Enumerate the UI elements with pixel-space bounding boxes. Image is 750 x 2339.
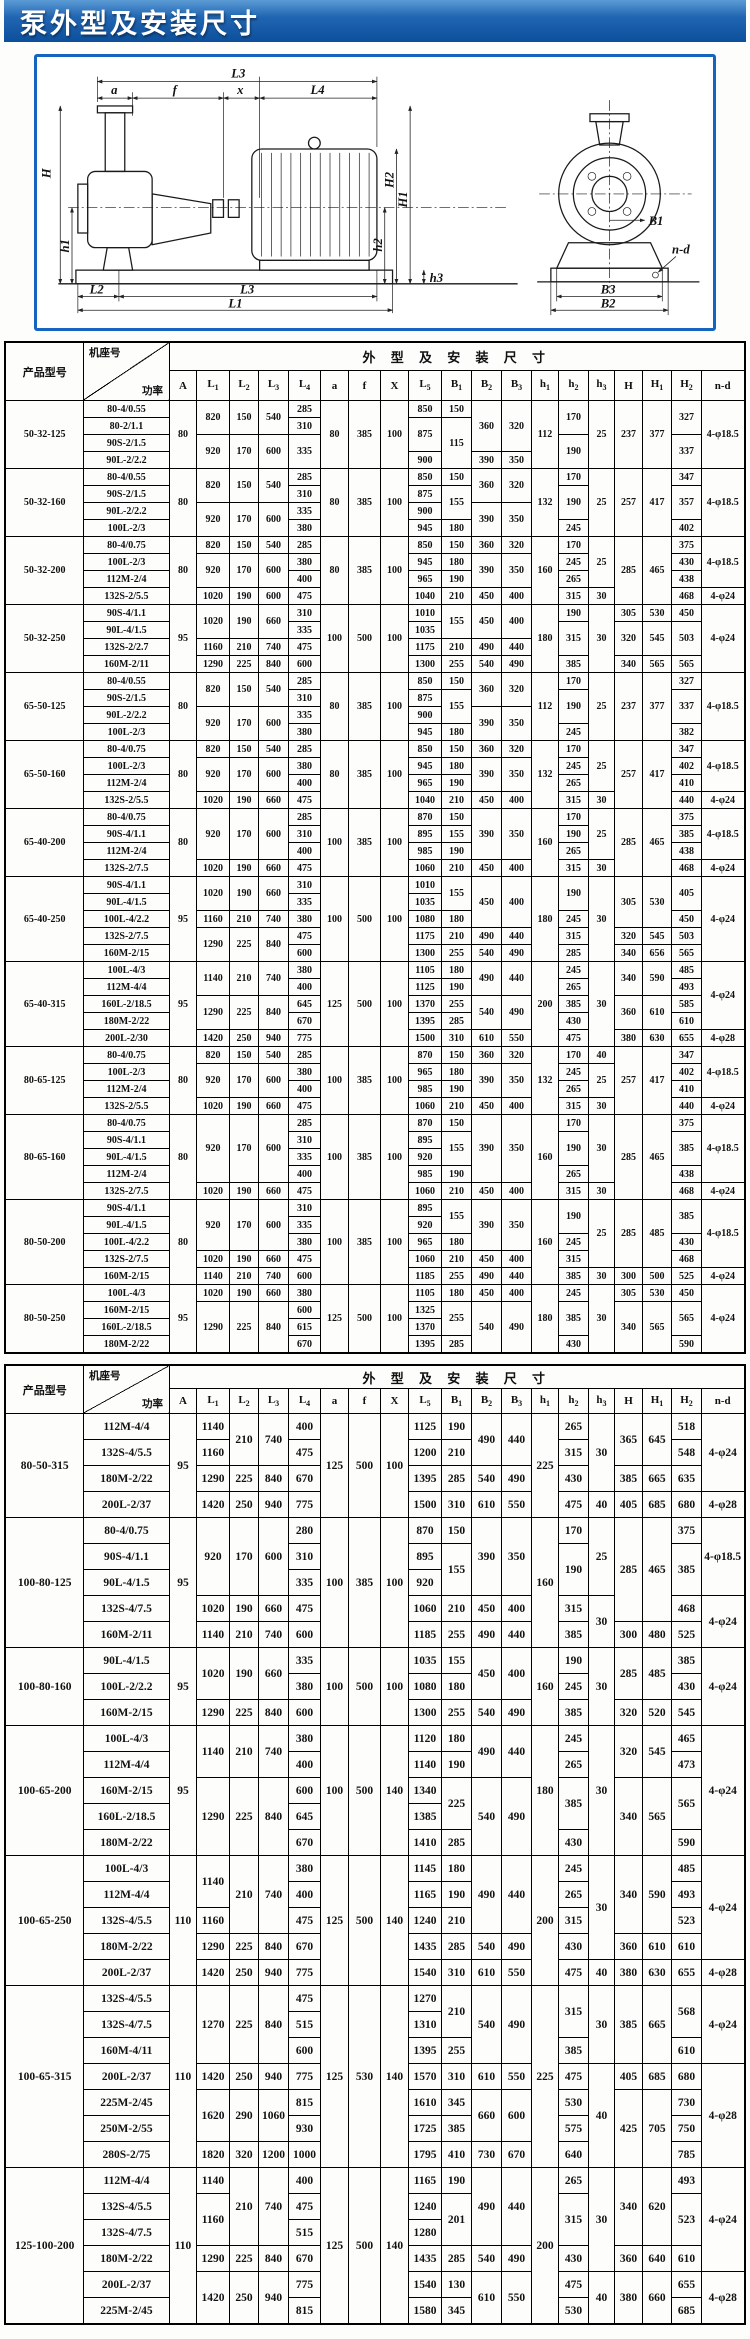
dimension-cell: 300 bbox=[614, 1622, 642, 1648]
baseplate bbox=[76, 270, 393, 284]
dimension-cell: 450 bbox=[471, 588, 501, 605]
dimension-cell: 685 bbox=[642, 2064, 671, 2090]
dimension-cell: 335 bbox=[288, 1648, 320, 1674]
header-outline-install-dims: 外 型 及 安 装 尺 寸 bbox=[169, 1365, 744, 1389]
dimension-cell: 475 bbox=[558, 1492, 588, 1518]
dimension-cell: 1820 bbox=[196, 2142, 229, 2168]
dimension-cell: 385 bbox=[348, 1518, 380, 1648]
dimension-cell: 125 bbox=[320, 1414, 348, 1518]
frame-power-cell: 200L-2/37 bbox=[83, 1492, 169, 1518]
dimension-cell: 500 bbox=[348, 2168, 380, 2325]
frame-power-cell: 132S-4/7.5 bbox=[83, 2012, 169, 2038]
dimension-cell: 550 bbox=[501, 1960, 531, 1986]
col-header-L4: L4 bbox=[288, 1389, 320, 1414]
dimension-cell: 875 bbox=[408, 418, 441, 452]
dimension-cell: 170 bbox=[229, 503, 258, 537]
dimension-cell: 225 bbox=[441, 1778, 471, 1830]
dimension-cell: 1105 bbox=[408, 962, 441, 979]
dimension-table-1: 产品型号机座号功率外 型 及 安 装 尺 寸AL1L2L3L4afXL5B1B2… bbox=[4, 341, 745, 1354]
dimension-cell: 1080 bbox=[408, 1674, 441, 1700]
dimension-cell: 310 bbox=[288, 877, 320, 894]
col-header-L5: L5 bbox=[408, 1389, 441, 1414]
frame-power-cell: 160L-2/18.5 bbox=[83, 1319, 169, 1336]
frame-power-cell: 90L-4/1.5 bbox=[83, 1648, 169, 1674]
dimension-cell: 440 bbox=[501, 1268, 531, 1285]
dimension-cell: 400 bbox=[288, 571, 320, 588]
dimension-cell: 430 bbox=[558, 1830, 588, 1856]
col-header-L1: L1 bbox=[196, 1389, 229, 1414]
dimension-cell: 265 bbox=[558, 1166, 588, 1183]
dimension-cell: 1620 bbox=[196, 2090, 229, 2142]
dimension-cell: 840 bbox=[258, 996, 288, 1030]
dimension-cell: 4-φ18.5 bbox=[701, 1115, 744, 1183]
dimension-cell: 540 bbox=[471, 1302, 501, 1354]
dimension-cell: 655 bbox=[671, 2272, 701, 2298]
frame-power-cell: 132S-2/5.5 bbox=[83, 792, 169, 809]
dimension-cell: 225 bbox=[229, 1302, 258, 1354]
dimension-cell: 170 bbox=[229, 1064, 258, 1098]
dimension-cell: 180 bbox=[441, 724, 471, 741]
frame-power-cell: 160M-2/15 bbox=[83, 1268, 169, 1285]
dimension-cell: 630 bbox=[642, 1960, 671, 1986]
dimension-cell: 100 bbox=[380, 401, 408, 469]
dimension-cell: 200 bbox=[531, 1856, 558, 1986]
dimension-cell: 590 bbox=[671, 1336, 701, 1354]
dimension-cell: 385 bbox=[348, 1115, 380, 1200]
dimension-cell: 1325 bbox=[408, 1302, 441, 1319]
dimension-cell: 257 bbox=[614, 741, 642, 809]
dimension-cell: 1140 bbox=[196, 1268, 229, 1285]
page-title-banner: 泵外型及安装尺寸 bbox=[4, 0, 746, 42]
dimension-cell: 30 bbox=[588, 1115, 614, 1183]
dimension-cell: 245 bbox=[558, 911, 588, 928]
dimension-cell: 315 bbox=[558, 1908, 588, 1934]
page: 泵外型及安装尺寸 bbox=[0, 0, 750, 2339]
dimension-cell: 350 bbox=[501, 1115, 531, 1183]
dimension-cell: 515 bbox=[288, 2220, 320, 2246]
dimension-cell: 660 bbox=[258, 1648, 288, 1700]
dimension-table-2: 产品型号机座号功率外 型 及 安 装 尺 寸AL1L2L3L4afXL5B1B2… bbox=[4, 1364, 745, 2325]
dimension-cell: 310 bbox=[288, 690, 320, 707]
power-label: 功率 bbox=[142, 1396, 163, 1411]
dimension-cell: 680 bbox=[671, 2064, 701, 2090]
dimension-cell: 180 bbox=[441, 1674, 471, 1700]
dimension-cell: 4-φ24 bbox=[701, 2168, 744, 2272]
dimension-cell: 585 bbox=[671, 996, 701, 1013]
dimension-cell: 95 bbox=[169, 1518, 196, 1648]
dimension-cell: 160 bbox=[531, 1518, 558, 1648]
dimension-cell: 380 bbox=[288, 1234, 320, 1251]
dimension-cell: 870 bbox=[408, 1115, 441, 1132]
table-row: 100-80-16090L-4/1.5951020190660335100500… bbox=[5, 1648, 744, 1674]
dimension-cell: 110 bbox=[169, 1986, 196, 2168]
frame-power-cell: 90L-4/1.5 bbox=[83, 1149, 169, 1166]
col-header-X: X bbox=[380, 1389, 408, 1414]
dimension-cell: 475 bbox=[288, 1440, 320, 1466]
dimension-cell: 1140 bbox=[196, 2168, 229, 2194]
dimension-cell: 245 bbox=[558, 554, 588, 571]
dimension-cell: 25 bbox=[588, 1200, 614, 1268]
frame-power-cell: 160L-2/18.5 bbox=[83, 996, 169, 1013]
dimension-cell: 210 bbox=[441, 588, 471, 605]
dimension-cell: 200 bbox=[531, 2168, 558, 2325]
dimension-cell: 1395 bbox=[408, 2038, 441, 2064]
dimension-cell: 1435 bbox=[408, 2246, 441, 2272]
dimension-cell: 450 bbox=[471, 877, 501, 928]
dimension-cell: 685 bbox=[642, 1492, 671, 1518]
dimension-cell: 4-φ24 bbox=[701, 588, 744, 605]
dimension-cell: 112 bbox=[531, 401, 558, 469]
dimension-cell: 320 bbox=[614, 1700, 642, 1726]
dimension-cell: 840 bbox=[258, 928, 288, 962]
dimension-cell: 360 bbox=[471, 741, 501, 758]
dimension-cell: 610 bbox=[471, 1492, 501, 1518]
dimension-cell: 180 bbox=[441, 1856, 471, 1882]
dimension-cell: 160 bbox=[531, 809, 558, 877]
dimension-cell: 940 bbox=[258, 2064, 288, 2090]
frame-power-cell: 100L-2/3 bbox=[83, 520, 169, 537]
dim-label-h3: h3 bbox=[430, 271, 443, 285]
dimension-cell: 380 bbox=[288, 911, 320, 928]
dimension-cell: 660 bbox=[258, 1098, 288, 1115]
dimension-cell: 1290 bbox=[196, 928, 229, 962]
frame-power-cell: 132S-2/2.7 bbox=[83, 639, 169, 656]
dimension-cell: 740 bbox=[258, 1414, 288, 1466]
dimension-cell: 365 bbox=[614, 1414, 642, 1466]
dimension-cell: 660 bbox=[471, 2090, 501, 2142]
dimension-cell: 335 bbox=[288, 1217, 320, 1234]
dimension-cell: 1300 bbox=[408, 1700, 441, 1726]
dimension-cell: 237 bbox=[614, 401, 642, 469]
dimension-cell: 380 bbox=[614, 1030, 642, 1047]
dimension-cell: 1160 bbox=[196, 2194, 229, 2246]
dimension-cell: 350 bbox=[501, 1518, 531, 1596]
dimension-cell: 310 bbox=[288, 605, 320, 622]
dimension-cell: 430 bbox=[558, 2246, 588, 2272]
dimension-cell: 400 bbox=[288, 843, 320, 860]
dimension-cell: 525 bbox=[671, 1268, 701, 1285]
dimension-cell: 940 bbox=[258, 1492, 288, 1518]
dimension-cell: 225 bbox=[531, 1414, 558, 1518]
dimension-cell: 1395 bbox=[408, 1466, 441, 1492]
dimension-cell: 315 bbox=[558, 1098, 588, 1115]
col-header-frame-power-diagonal: 机座号功率 bbox=[83, 342, 169, 401]
dimension-cell: 1020 bbox=[196, 1596, 229, 1622]
dimension-cell: 945 bbox=[408, 724, 441, 741]
dimension-cell: 1270 bbox=[408, 1986, 441, 2012]
dimension-cell: 1240 bbox=[408, 1908, 441, 1934]
dimension-cell: 155 bbox=[441, 1544, 471, 1596]
dimension-cell: 385 bbox=[671, 1200, 701, 1234]
col-header-B3: B3 bbox=[501, 371, 531, 401]
dimension-cell: 4-φ24 bbox=[701, 860, 744, 877]
dimension-cell: 305 bbox=[614, 877, 642, 928]
dimension-cell: 1140 bbox=[196, 1622, 229, 1648]
dimension-cell: 490 bbox=[501, 656, 531, 673]
dimension-cell: 740 bbox=[258, 1726, 288, 1778]
dimension-cell: 210 bbox=[441, 860, 471, 877]
col-header-H: H bbox=[614, 371, 642, 401]
dimension-cell: 350 bbox=[501, 554, 531, 588]
dimension-cell: 670 bbox=[288, 2246, 320, 2272]
dimension-cell: 417 bbox=[642, 1047, 671, 1115]
dimension-cell: 920 bbox=[196, 503, 229, 537]
product-model-cell: 80-50-315 bbox=[5, 1414, 83, 1518]
frame-power-cell: 100L-4/3 bbox=[83, 962, 169, 979]
frame-power-cell: 112M-2/4 bbox=[83, 775, 169, 792]
dimension-cell: 30 bbox=[588, 1596, 614, 1648]
frame-power-cell: 80-4/0.75 bbox=[83, 809, 169, 826]
dimension-cell: 1010 bbox=[408, 877, 441, 894]
dimension-cell: 385 bbox=[614, 1466, 642, 1492]
frame-power-cell: 90S-2/1.5 bbox=[83, 690, 169, 707]
dimension-cell: 1020 bbox=[196, 588, 229, 605]
dimension-lines-end: B1 B3 B2 n-d bbox=[551, 214, 690, 315]
dimension-cell: 640 bbox=[558, 2142, 588, 2168]
dimension-cell: 1410 bbox=[408, 1830, 441, 1856]
dimension-cell: 750 bbox=[671, 2116, 701, 2142]
product-model-cell: 100-65-250 bbox=[5, 1856, 83, 1986]
dimension-cell: 1145 bbox=[408, 1856, 441, 1882]
dimension-cell: 350 bbox=[501, 707, 531, 741]
dimension-cell: 357 bbox=[671, 486, 701, 520]
col-header-L3: L3 bbox=[258, 371, 288, 401]
dimension-cell: 985 bbox=[408, 1081, 441, 1098]
dimension-cell: 410 bbox=[441, 2142, 471, 2168]
frame-power-cell: 132S-4/5.5 bbox=[83, 1908, 169, 1934]
dimension-cell: 600 bbox=[258, 1115, 288, 1183]
dimension-cell: 523 bbox=[671, 1908, 701, 1934]
dimension-cell: 4-φ28 bbox=[701, 2272, 744, 2325]
dimension-cell: 1060 bbox=[258, 2090, 288, 2142]
dimension-cell: 400 bbox=[501, 860, 531, 877]
frame-power-cell: 90S-4/1.1 bbox=[83, 1200, 169, 1217]
dimension-cell: 190 bbox=[441, 2168, 471, 2194]
product-model-cell: 65-50-125 bbox=[5, 673, 83, 741]
product-model-cell: 100-65-200 bbox=[5, 1726, 83, 1856]
dimension-cell: 155 bbox=[441, 826, 471, 843]
col-header-L2: L2 bbox=[229, 1389, 258, 1414]
dimension-cell: 1000 bbox=[288, 2142, 320, 2168]
dimension-cell: 360 bbox=[471, 673, 501, 707]
product-model-cell: 80-50-250 bbox=[5, 1285, 83, 1354]
dimension-cell: 500 bbox=[348, 962, 380, 1047]
dimension-cell: 80 bbox=[169, 401, 196, 469]
dimension-cell: 80 bbox=[169, 809, 196, 877]
dimension-cell: 155 bbox=[441, 1132, 471, 1166]
dimension-cell: 945 bbox=[408, 520, 441, 537]
dimension-cell: 170 bbox=[558, 401, 588, 435]
product-model-cell: 80-50-200 bbox=[5, 1200, 83, 1285]
dimension-cell: 1140 bbox=[196, 1414, 229, 1440]
dimension-cell: 100 bbox=[320, 1115, 348, 1200]
dimension-cell: 190 bbox=[558, 877, 588, 911]
dimension-cell: 320 bbox=[501, 673, 531, 707]
frame-power-cell: 112M-4/4 bbox=[83, 2168, 169, 2194]
dimension-cell: 390 bbox=[471, 707, 501, 741]
frame-power-cell: 280S-2/75 bbox=[83, 2142, 169, 2168]
dimension-cell: 500 bbox=[642, 1268, 671, 1285]
dimension-cell: 285 bbox=[441, 1336, 471, 1354]
dimension-cell: 840 bbox=[258, 656, 288, 673]
dimension-cell: 402 bbox=[671, 1064, 701, 1081]
col-header-a: a bbox=[320, 371, 348, 401]
header-outline-install-dims: 外 型 及 安 装 尺 寸 bbox=[169, 342, 744, 371]
dimension-cell: 385 bbox=[348, 401, 380, 469]
dimension-cell: 315 bbox=[558, 2194, 588, 2246]
dimension-cell: 540 bbox=[258, 741, 288, 758]
dimension-cell: 475 bbox=[288, 2194, 320, 2220]
dimension-cell: 656 bbox=[642, 945, 671, 962]
dimension-cell: 170 bbox=[558, 1047, 588, 1064]
dimension-cell: 405 bbox=[614, 2064, 642, 2090]
dimension-cell: 450 bbox=[471, 1596, 501, 1622]
dimension-cell: 210 bbox=[229, 1268, 258, 1285]
dimension-cell: 468 bbox=[671, 1596, 701, 1622]
dimension-cell: 670 bbox=[501, 2142, 531, 2168]
frame-label: 机座号 bbox=[89, 1368, 121, 1383]
dimension-cell: 100 bbox=[380, 1648, 408, 1726]
dimension-cell: 920 bbox=[408, 1570, 441, 1596]
dimension-cell: 180 bbox=[441, 758, 471, 775]
dimension-cell: 1395 bbox=[408, 1013, 441, 1030]
dimension-cell: 600 bbox=[258, 588, 288, 605]
dimension-cell: 490 bbox=[501, 1934, 531, 1960]
col-header-f: f bbox=[348, 371, 380, 401]
dimension-cell: 180 bbox=[531, 1285, 558, 1354]
dimension-cell: 132 bbox=[531, 741, 558, 809]
dimension-cell: 4-φ24 bbox=[701, 1285, 744, 1354]
dimension-cell: 965 bbox=[408, 1234, 441, 1251]
dimension-cell: 190 bbox=[558, 435, 588, 469]
dimension-cell: 450 bbox=[471, 605, 501, 639]
dimension-cell: 190 bbox=[229, 1251, 258, 1268]
dimension-cell: 940 bbox=[258, 2272, 288, 2325]
dimension-cell: 1270 bbox=[196, 1986, 229, 2064]
dimension-cell: 180 bbox=[441, 1064, 471, 1081]
dimension-cell: 450 bbox=[471, 792, 501, 809]
dimension-cell: 210 bbox=[441, 639, 471, 656]
pump-outline-drawing: L3 a f x L4 H h1 h2 H2 H1 h3 bbox=[39, 61, 707, 319]
dimension-cell: 245 bbox=[558, 1674, 588, 1700]
dimension-cell: 390 bbox=[471, 452, 501, 469]
dimension-cell: 468 bbox=[671, 1183, 701, 1200]
dimension-cell: 335 bbox=[288, 435, 320, 469]
frame-power-cell: 100L-4/3 bbox=[83, 1285, 169, 1302]
dimension-cell: 1020 bbox=[196, 792, 229, 809]
dimension-cell: 320 bbox=[501, 469, 531, 503]
frame-power-cell: 90L-2/2.2 bbox=[83, 452, 169, 469]
dimension-cell: 493 bbox=[671, 1882, 701, 1908]
dimension-cell: 190 bbox=[441, 775, 471, 792]
dimension-cell: 600 bbox=[258, 435, 288, 469]
dimension-cell: 1035 bbox=[408, 894, 441, 911]
dimension-cell: 815 bbox=[288, 2090, 320, 2116]
dimension-cell: 190 bbox=[441, 1166, 471, 1183]
dimension-cell: 380 bbox=[288, 1064, 320, 1081]
dimension-cell: 155 bbox=[441, 486, 471, 520]
page-title: 泵外型及安装尺寸 bbox=[20, 2, 260, 41]
dimension-cell: 840 bbox=[258, 1934, 288, 1960]
dimension-cell: 255 bbox=[441, 945, 471, 962]
dimension-cell: 110 bbox=[169, 1856, 196, 1986]
dimension-cell: 160 bbox=[531, 537, 558, 605]
dimension-cell: 400 bbox=[501, 1251, 531, 1268]
table-row: 65-50-16080-4/0.758082015054028580385100… bbox=[5, 741, 744, 758]
dimension-cell: 255 bbox=[441, 656, 471, 673]
dimension-cell: 568 bbox=[671, 1986, 701, 2038]
dimension-cell: 285 bbox=[288, 469, 320, 486]
dimension-cell: 150 bbox=[441, 673, 471, 690]
table-row: 100-65-200100L-4/39511402107403801005001… bbox=[5, 1726, 744, 1752]
dimension-cell: 600 bbox=[258, 809, 288, 860]
dimension-cell: 430 bbox=[558, 1336, 588, 1354]
dimension-cell: 225 bbox=[229, 1934, 258, 1960]
dimension-cell: 840 bbox=[258, 1466, 288, 1492]
dimension-cell: 645 bbox=[288, 996, 320, 1013]
dimension-cell: 100 bbox=[320, 1200, 348, 1285]
dimension-cell: 250 bbox=[229, 2272, 258, 2325]
col-header-h1: h1 bbox=[531, 1389, 558, 1414]
frame-power-cell: 90S-4/1.1 bbox=[83, 1544, 169, 1570]
dimension-cell: 380 bbox=[288, 1726, 320, 1752]
dimension-cell: 250 bbox=[229, 1960, 258, 1986]
frame-power-cell: 250M-2/55 bbox=[83, 2116, 169, 2142]
frame-power-cell: 90L-4/1.5 bbox=[83, 1217, 169, 1234]
product-model-cell: 50-32-200 bbox=[5, 537, 83, 605]
dimension-cell: 310 bbox=[288, 826, 320, 843]
dimension-cell: 430 bbox=[558, 1013, 588, 1030]
dimension-cell: 740 bbox=[258, 1268, 288, 1285]
dimension-cell: 400 bbox=[288, 1414, 320, 1440]
table-row: 50-32-12580-4/0.558082015054028580385100… bbox=[5, 401, 744, 418]
dimension-cell: 385 bbox=[558, 1302, 588, 1336]
frame-power-cell: 160M-2/11 bbox=[83, 656, 169, 673]
dimension-cell: 530 bbox=[642, 605, 671, 622]
dimension-cell: 530 bbox=[558, 2298, 588, 2325]
dimension-cell: 257 bbox=[614, 1047, 642, 1115]
dimension-cell: 900 bbox=[408, 503, 441, 520]
dimension-cell: 490 bbox=[471, 962, 501, 996]
dimension-cell: 360 bbox=[471, 537, 501, 554]
dimension-cell: 225 bbox=[531, 1986, 558, 2168]
dimension-cell: 1725 bbox=[408, 2116, 441, 2142]
dimension-cell: 1140 bbox=[408, 1752, 441, 1778]
dimension-cell: 170 bbox=[558, 809, 588, 826]
dim-label-L1: L1 bbox=[227, 296, 242, 310]
dimension-cell: 155 bbox=[441, 605, 471, 639]
dimension-cell: 385 bbox=[348, 673, 380, 741]
col-header-H1: H1 bbox=[642, 371, 671, 401]
frame-power-cell: 160M-2/15 bbox=[83, 945, 169, 962]
dimension-cell: 360 bbox=[471, 1047, 501, 1064]
dimension-cell: 523 bbox=[671, 2194, 701, 2246]
dimension-cell: 225 bbox=[229, 996, 258, 1030]
dim-label-L3-bottom: L3 bbox=[239, 283, 254, 297]
dimension-cell: 820 bbox=[196, 1047, 229, 1064]
dimension-cell: 385 bbox=[558, 2038, 588, 2064]
dimension-cell: 600 bbox=[288, 1302, 320, 1319]
dimension-cell: 655 bbox=[671, 1960, 701, 1986]
dimension-cell: 4-φ18.5 bbox=[701, 1200, 744, 1268]
dimension-cell: 450 bbox=[671, 1285, 701, 1302]
dimension-cell: 490 bbox=[501, 1700, 531, 1726]
frame-power-cell: 112M-4/4 bbox=[83, 1414, 169, 1440]
dimension-cell: 385 bbox=[671, 826, 701, 843]
dimension-cell: 430 bbox=[671, 1674, 701, 1700]
dimension-cell: 660 bbox=[258, 1285, 288, 1302]
frame-power-cell: 100L-2/3 bbox=[83, 724, 169, 741]
